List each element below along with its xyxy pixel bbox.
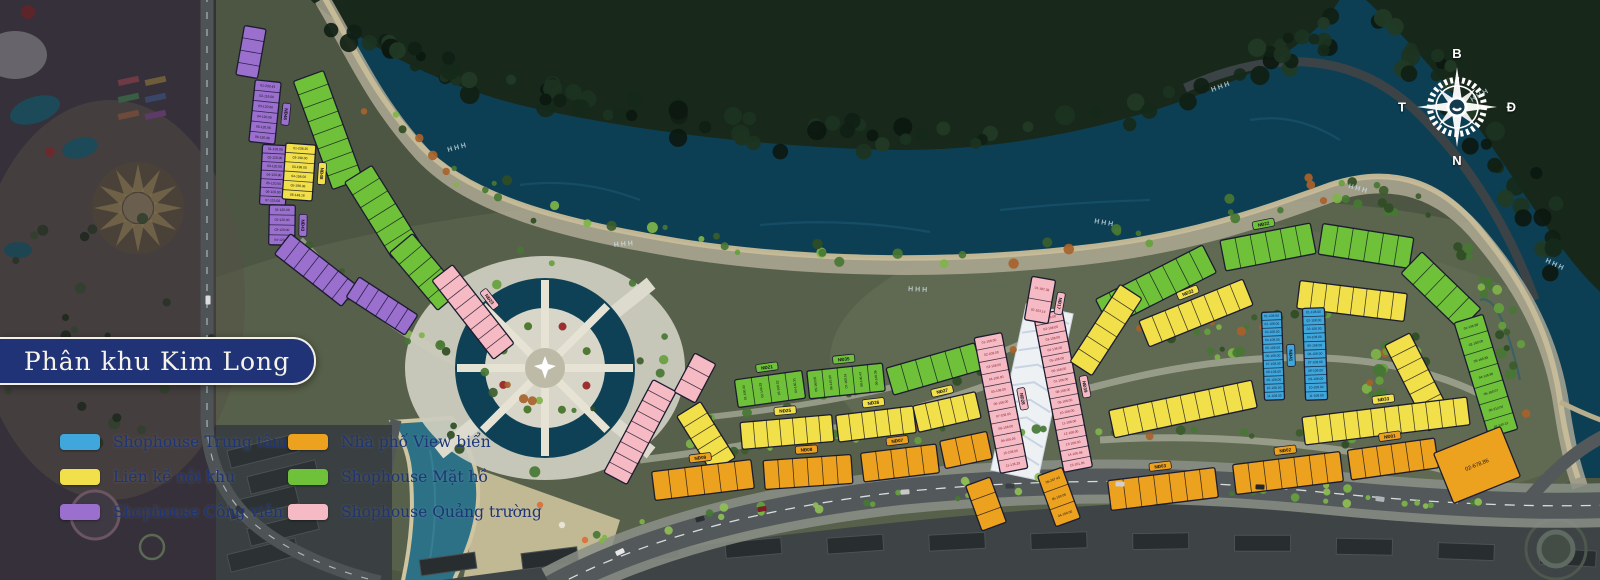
svg-text:H H H: H H H — [908, 286, 927, 294]
master-plan: H H HH H HH H HH H HH H HH H HH H HH H H… — [0, 0, 1600, 580]
svg-text:03-120.00: 03-120.00 — [274, 228, 289, 232]
svg-text:03-120.00: 03-120.00 — [267, 164, 282, 169]
svg-text:09-108.00: 09-108.00 — [1308, 377, 1323, 382]
legend-swatch-orange — [288, 434, 328, 450]
svg-text:06-120.00: 06-120.00 — [266, 190, 281, 195]
compass-south-label: N — [1452, 153, 1461, 168]
svg-text:04-108.00: 04-108.00 — [1307, 335, 1322, 340]
block-blue-41[interactable]: 01-108.0002-108.0003-108.0004-108.0005-1… — [1302, 308, 1327, 401]
legend-label-yellow: Liền kề nội khu — [113, 468, 235, 486]
svg-text:09-108.00: 09-108.00 — [1266, 378, 1281, 383]
legend-item-purple: Shophouse Công viên — [60, 494, 288, 529]
legend-label-purple: Shophouse Công viên — [113, 503, 283, 521]
legend-item-blue: Shophouse Trung tâm — [60, 424, 288, 459]
svg-text:06-108.00: 06-108.00 — [1266, 354, 1281, 359]
svg-text:11-108.00: 11-108.00 — [1267, 394, 1282, 399]
svg-text:11-108.00: 11-108.00 — [1309, 393, 1324, 398]
svg-text:02-108.00: 02-108.00 — [1264, 322, 1279, 327]
legend-label-pink: Shophouse Quảng trường — [341, 503, 542, 521]
svg-text:NĐ48: NĐ48 — [319, 168, 325, 181]
svg-text:07-108.00: 07-108.00 — [1266, 362, 1281, 367]
svg-text:06-108.00: 06-108.00 — [1308, 352, 1323, 357]
svg-text:07-108.00: 07-108.00 — [1308, 360, 1323, 365]
svg-text:04-108.00: 04-108.00 — [1265, 338, 1280, 343]
svg-text:01-108.00: 01-108.00 — [1264, 314, 1279, 319]
legend-label-blue: Shophouse Trung tâm — [113, 433, 287, 451]
svg-text:05-120.00: 05-120.00 — [266, 181, 281, 186]
svg-text:02-108.00: 02-108.00 — [1306, 318, 1321, 323]
svg-text:10-108.00: 10-108.00 — [1309, 385, 1324, 390]
svg-text:03-108.00: 03-108.00 — [1307, 327, 1322, 332]
svg-text:05-108.00: 05-108.00 — [1265, 346, 1280, 351]
svg-text:03-108.00: 03-108.00 — [1265, 330, 1280, 335]
compass-north-label: B — [1452, 46, 1461, 61]
svg-text:08-108.00: 08-108.00 — [1308, 368, 1323, 373]
compass-rose: B Đ N T — [1398, 46, 1516, 168]
legend: Shophouse Trung tâmLiền kề nội khuShopho… — [60, 424, 542, 529]
svg-text:NĐ25: NĐ25 — [779, 408, 792, 414]
svg-text:05-108.00: 05-108.00 — [1307, 343, 1322, 348]
legend-item-green: Shophouse Mặt hồ — [288, 459, 542, 494]
legend-swatch-pink — [288, 504, 328, 520]
legend-swatch-blue — [60, 434, 100, 450]
legend-label-orange: Nhà phố View biển — [341, 433, 491, 451]
svg-text:NĐ43: NĐ43 — [300, 219, 305, 231]
section-title: Phân khu Kim Long — [24, 347, 290, 376]
svg-text:10-108.00: 10-108.00 — [1267, 386, 1282, 391]
svg-text:01-108.00: 01-108.00 — [1306, 310, 1321, 315]
legend-item-pink: Shophouse Quảng trường — [288, 494, 542, 529]
section-title-banner: Phân khu Kim Long — [0, 337, 316, 385]
svg-text:02-120.00: 02-120.00 — [267, 155, 282, 160]
legend-label-green: Shophouse Mặt hồ — [341, 468, 488, 486]
legend-item-yellow: Liền kề nội khu — [60, 459, 288, 494]
svg-text:02-120.00: 02-120.00 — [275, 218, 290, 222]
svg-text:NĐ08: NĐ08 — [800, 447, 813, 453]
legend-item-orange: Nhà phố View biển — [288, 424, 542, 459]
compass-west-label: T — [1398, 100, 1406, 115]
svg-text:08-108.00: 08-108.00 — [1266, 370, 1281, 375]
svg-text:01-120.00: 01-120.00 — [268, 147, 283, 152]
legend-swatch-green — [288, 469, 328, 485]
legend-swatch-purple — [60, 504, 100, 520]
legend-swatch-yellow — [60, 469, 100, 485]
svg-text:NĐ41: NĐ41 — [1288, 349, 1293, 361]
svg-text:01-120.00: 01-120.00 — [275, 208, 290, 212]
svg-text:04-120.00: 04-120.00 — [266, 172, 281, 177]
svg-text:07-125.00: 07-125.00 — [265, 198, 280, 203]
compass-east-label: Đ — [1507, 100, 1516, 115]
compass-star-icon — [1398, 46, 1516, 168]
